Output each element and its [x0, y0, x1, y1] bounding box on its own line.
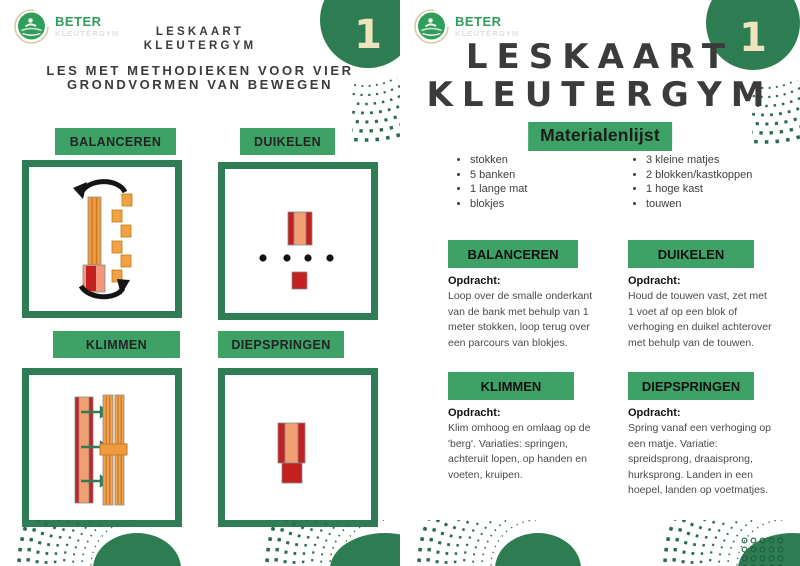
material-item: 1 hoge kast — [646, 182, 752, 196]
materials-list-left: stokken 5 banken 1 lange mat blokjes — [456, 153, 527, 211]
task-label: Opdracht: — [628, 407, 780, 419]
page-title: LESKAART KLEUTERGYM — [0, 26, 400, 53]
diagram-duikelen — [218, 162, 378, 320]
task-text: Loop over de smalle onderkant van de ban… — [448, 289, 595, 351]
klimmen-diagram-icon — [29, 375, 175, 519]
task-text: Spring vanaf een verhoging op een matje.… — [628, 421, 775, 499]
diagram-diepspringen — [218, 368, 378, 527]
page-subtitle: LES MET METHODIEKEN VOOR VIER GRONDVORME… — [0, 64, 400, 92]
quadrant-label-klimmen: KLIMMEN — [53, 331, 180, 358]
logo-brand: BETER — [455, 15, 520, 28]
task-label: Opdracht: — [448, 407, 600, 419]
section-klimmen: KLIMMEN Opdracht: Klim omhoog en omlaag … — [448, 372, 600, 483]
diepspringen-diagram-icon — [225, 375, 371, 519]
materials-list-right: 3 kleine matjes 2 blokken/kastkoppen 1 h… — [632, 153, 752, 211]
task-label: Opdracht: — [448, 275, 600, 287]
quadrant-label-duikelen: DUIKELEN — [240, 128, 335, 155]
section-diepspringen: DIEPSPRINGEN Opdracht: Spring vanaf een … — [628, 372, 780, 499]
leskaart-spread: BETER KLEUTERGYM 1 LESKAART KLEUTERGYM L… — [0, 0, 800, 566]
material-item: touwen — [646, 197, 752, 211]
section-label-klimmen: KLIMMEN — [448, 372, 574, 400]
ring-dots-overlay — [740, 536, 784, 566]
material-item: 3 kleine matjes — [646, 153, 752, 167]
material-item: 1 lange mat — [470, 182, 527, 196]
material-item: 5 banken — [470, 168, 527, 182]
page-right: BETER KLEUTERGYM 1 LESKAART KLEUTERGYM M… — [400, 0, 800, 566]
materials-header: Materialenlijst — [528, 122, 672, 151]
quadrant-label-diepspringen: DIEPSPRINGEN — [218, 331, 344, 358]
balanceren-diagram-icon — [29, 167, 175, 311]
page-left: BETER KLEUTERGYM 1 LESKAART KLEUTERGYM L… — [0, 0, 400, 566]
material-item: stokken — [470, 153, 527, 167]
page-title: LESKAART KLEUTERGYM — [400, 38, 800, 114]
diagram-klimmen — [22, 368, 182, 527]
task-text: Klim omhoog en omlaag op de 'berg'. Vari… — [448, 421, 595, 483]
material-item: 2 blokken/kastkoppen — [646, 168, 752, 182]
quadrant-label-balanceren: BALANCEREN — [55, 128, 176, 155]
task-label: Opdracht: — [628, 275, 780, 287]
material-item: blokjes — [470, 197, 527, 211]
section-duikelen: DUIKELEN Opdracht: Houd de touwen vast, … — [628, 240, 780, 351]
section-label-duikelen: DUIKELEN — [628, 240, 754, 268]
section-label-balanceren: BALANCEREN — [448, 240, 578, 268]
diagram-balanceren — [22, 160, 182, 318]
section-balanceren: BALANCEREN Opdracht: Loop over de smalle… — [448, 240, 600, 351]
task-text: Houd de touwen vast, zet met 1 voet af o… — [628, 289, 775, 351]
duikelen-diagram-icon — [225, 169, 371, 313]
section-label-diepspringen: DIEPSPRINGEN — [628, 372, 754, 400]
